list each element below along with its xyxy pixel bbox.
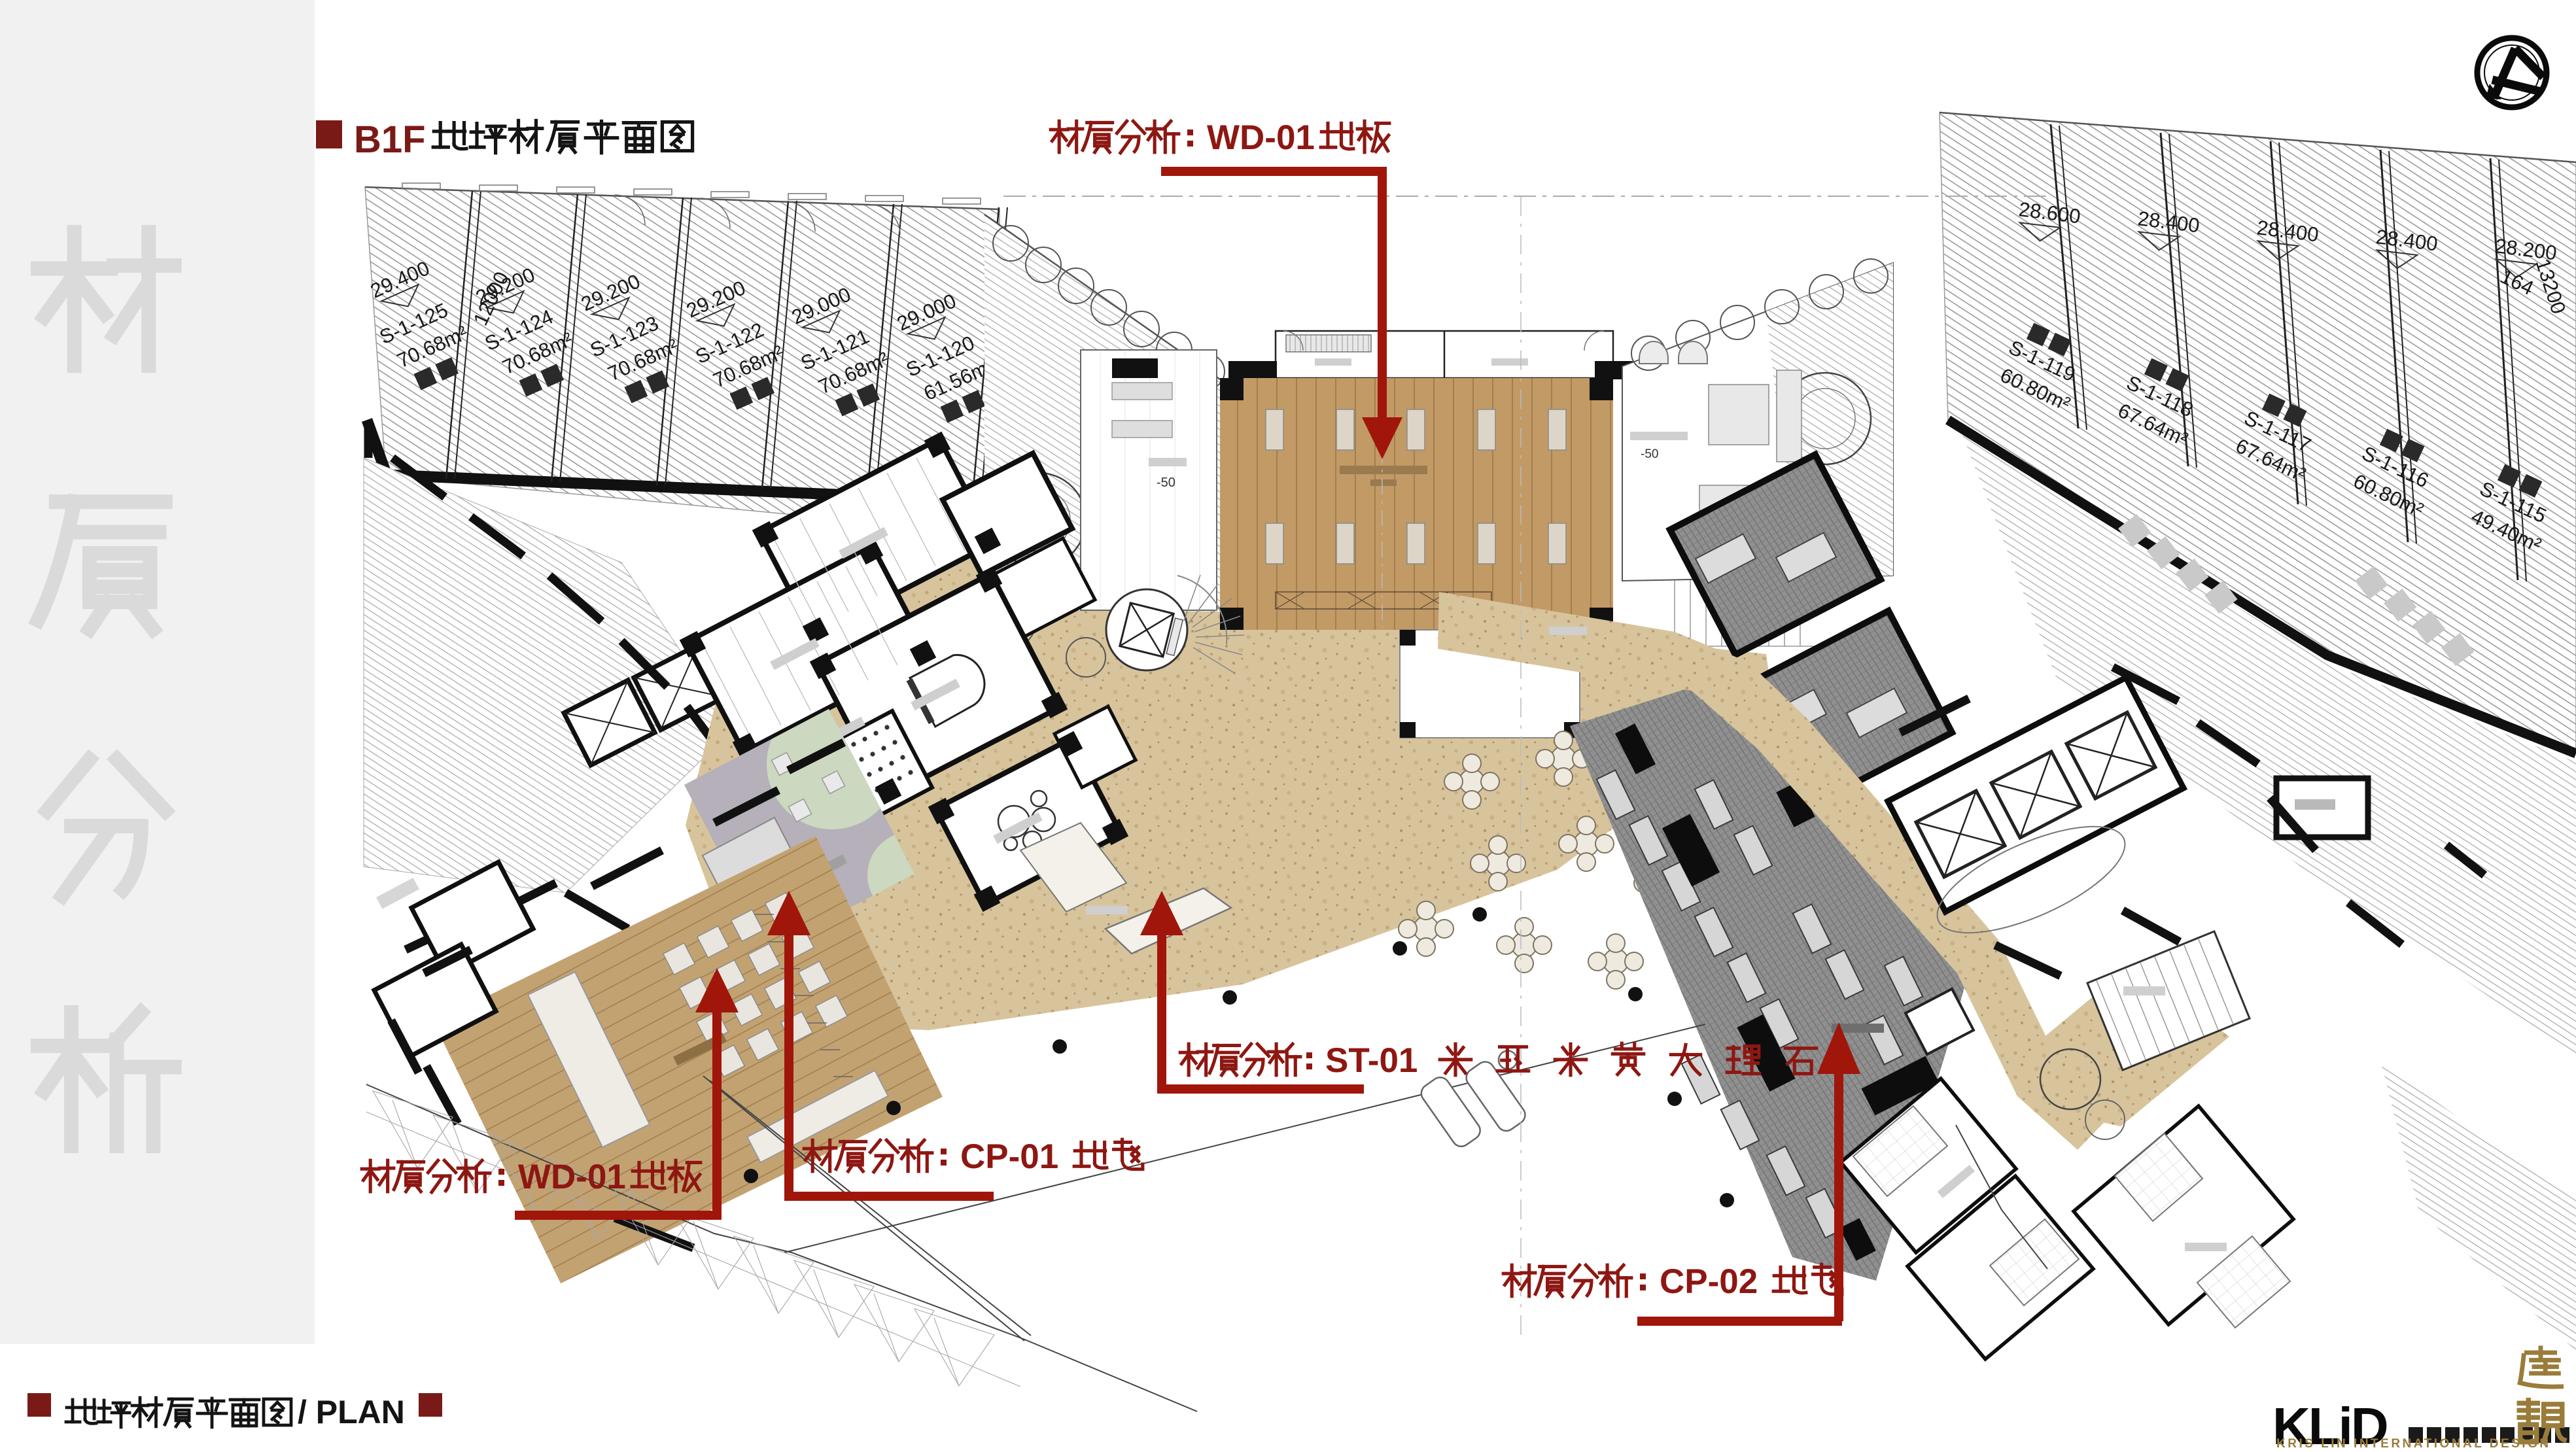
svg-text:ST-01: ST-01 (1325, 1041, 1418, 1080)
svg-text:WD-01: WD-01 (518, 1158, 626, 1196)
svg-text:/ PLAN: / PLAN (298, 1394, 405, 1430)
svg-text:CP-01: CP-01 (960, 1137, 1058, 1176)
svg-text:CP-02: CP-02 (1660, 1262, 1758, 1301)
svg-text:KRIS LIN INTERNATIONAL DESIGN: KRIS LIN INTERNATIONAL DESIGN (2276, 1437, 2551, 1449)
svg-text:B1F: B1F (354, 118, 426, 161)
svg-text:-50: -50 (1157, 475, 1175, 490)
svg-text:WD-01: WD-01 (1207, 118, 1315, 157)
svg-text:-50: -50 (1641, 447, 1658, 461)
